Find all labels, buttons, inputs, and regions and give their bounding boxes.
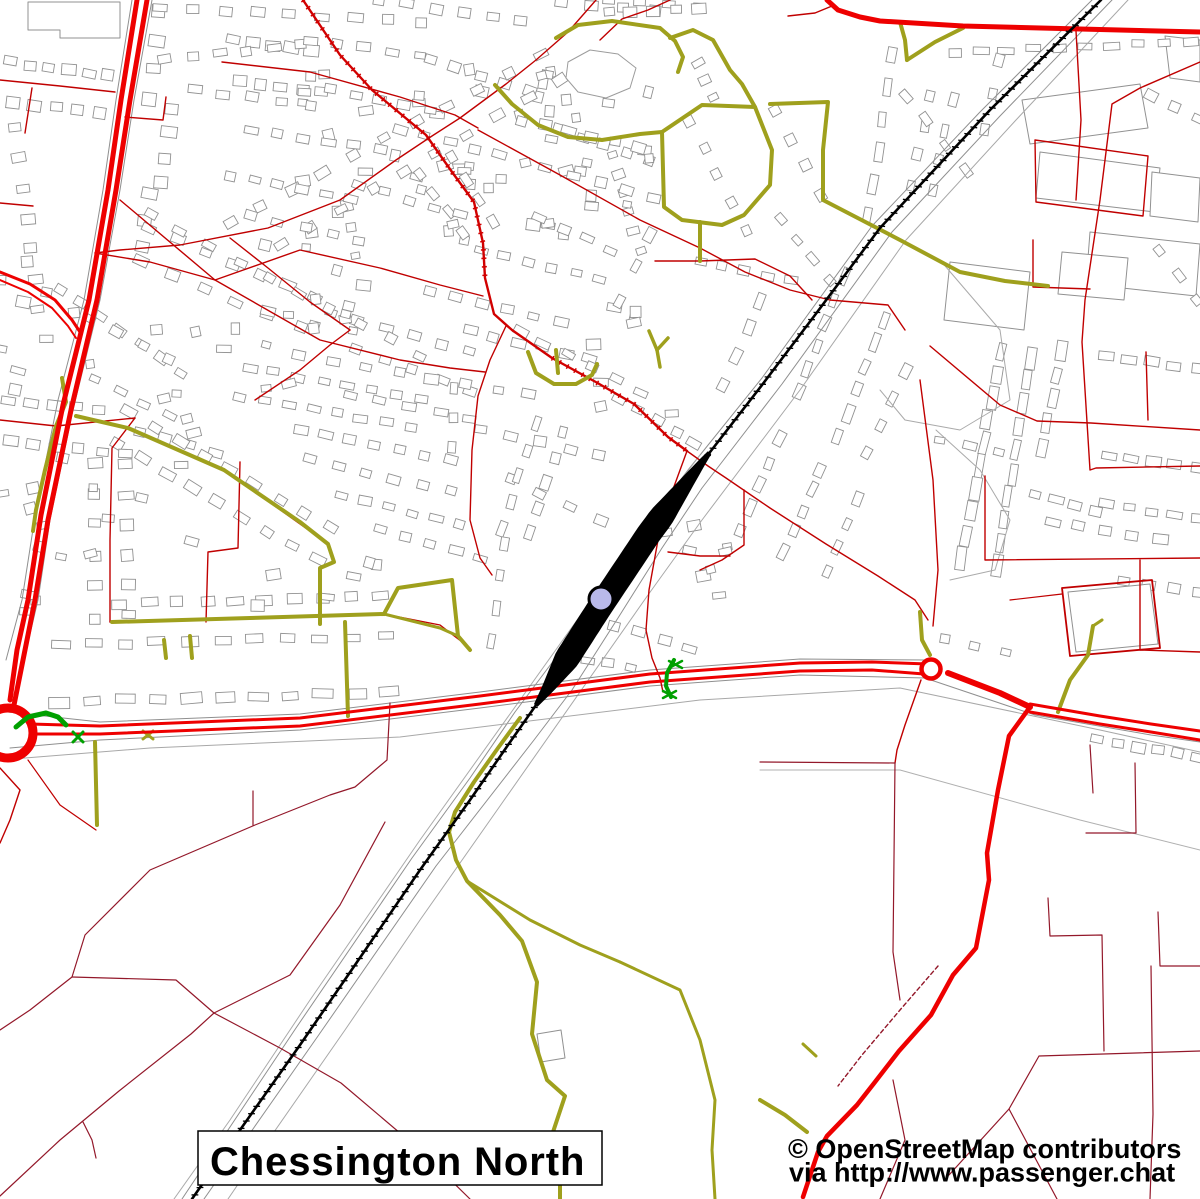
svg-text:Chessington North: Chessington North	[210, 1140, 585, 1184]
svg-text:via http://www.passenger.chat: via http://www.passenger.chat	[789, 1158, 1175, 1188]
